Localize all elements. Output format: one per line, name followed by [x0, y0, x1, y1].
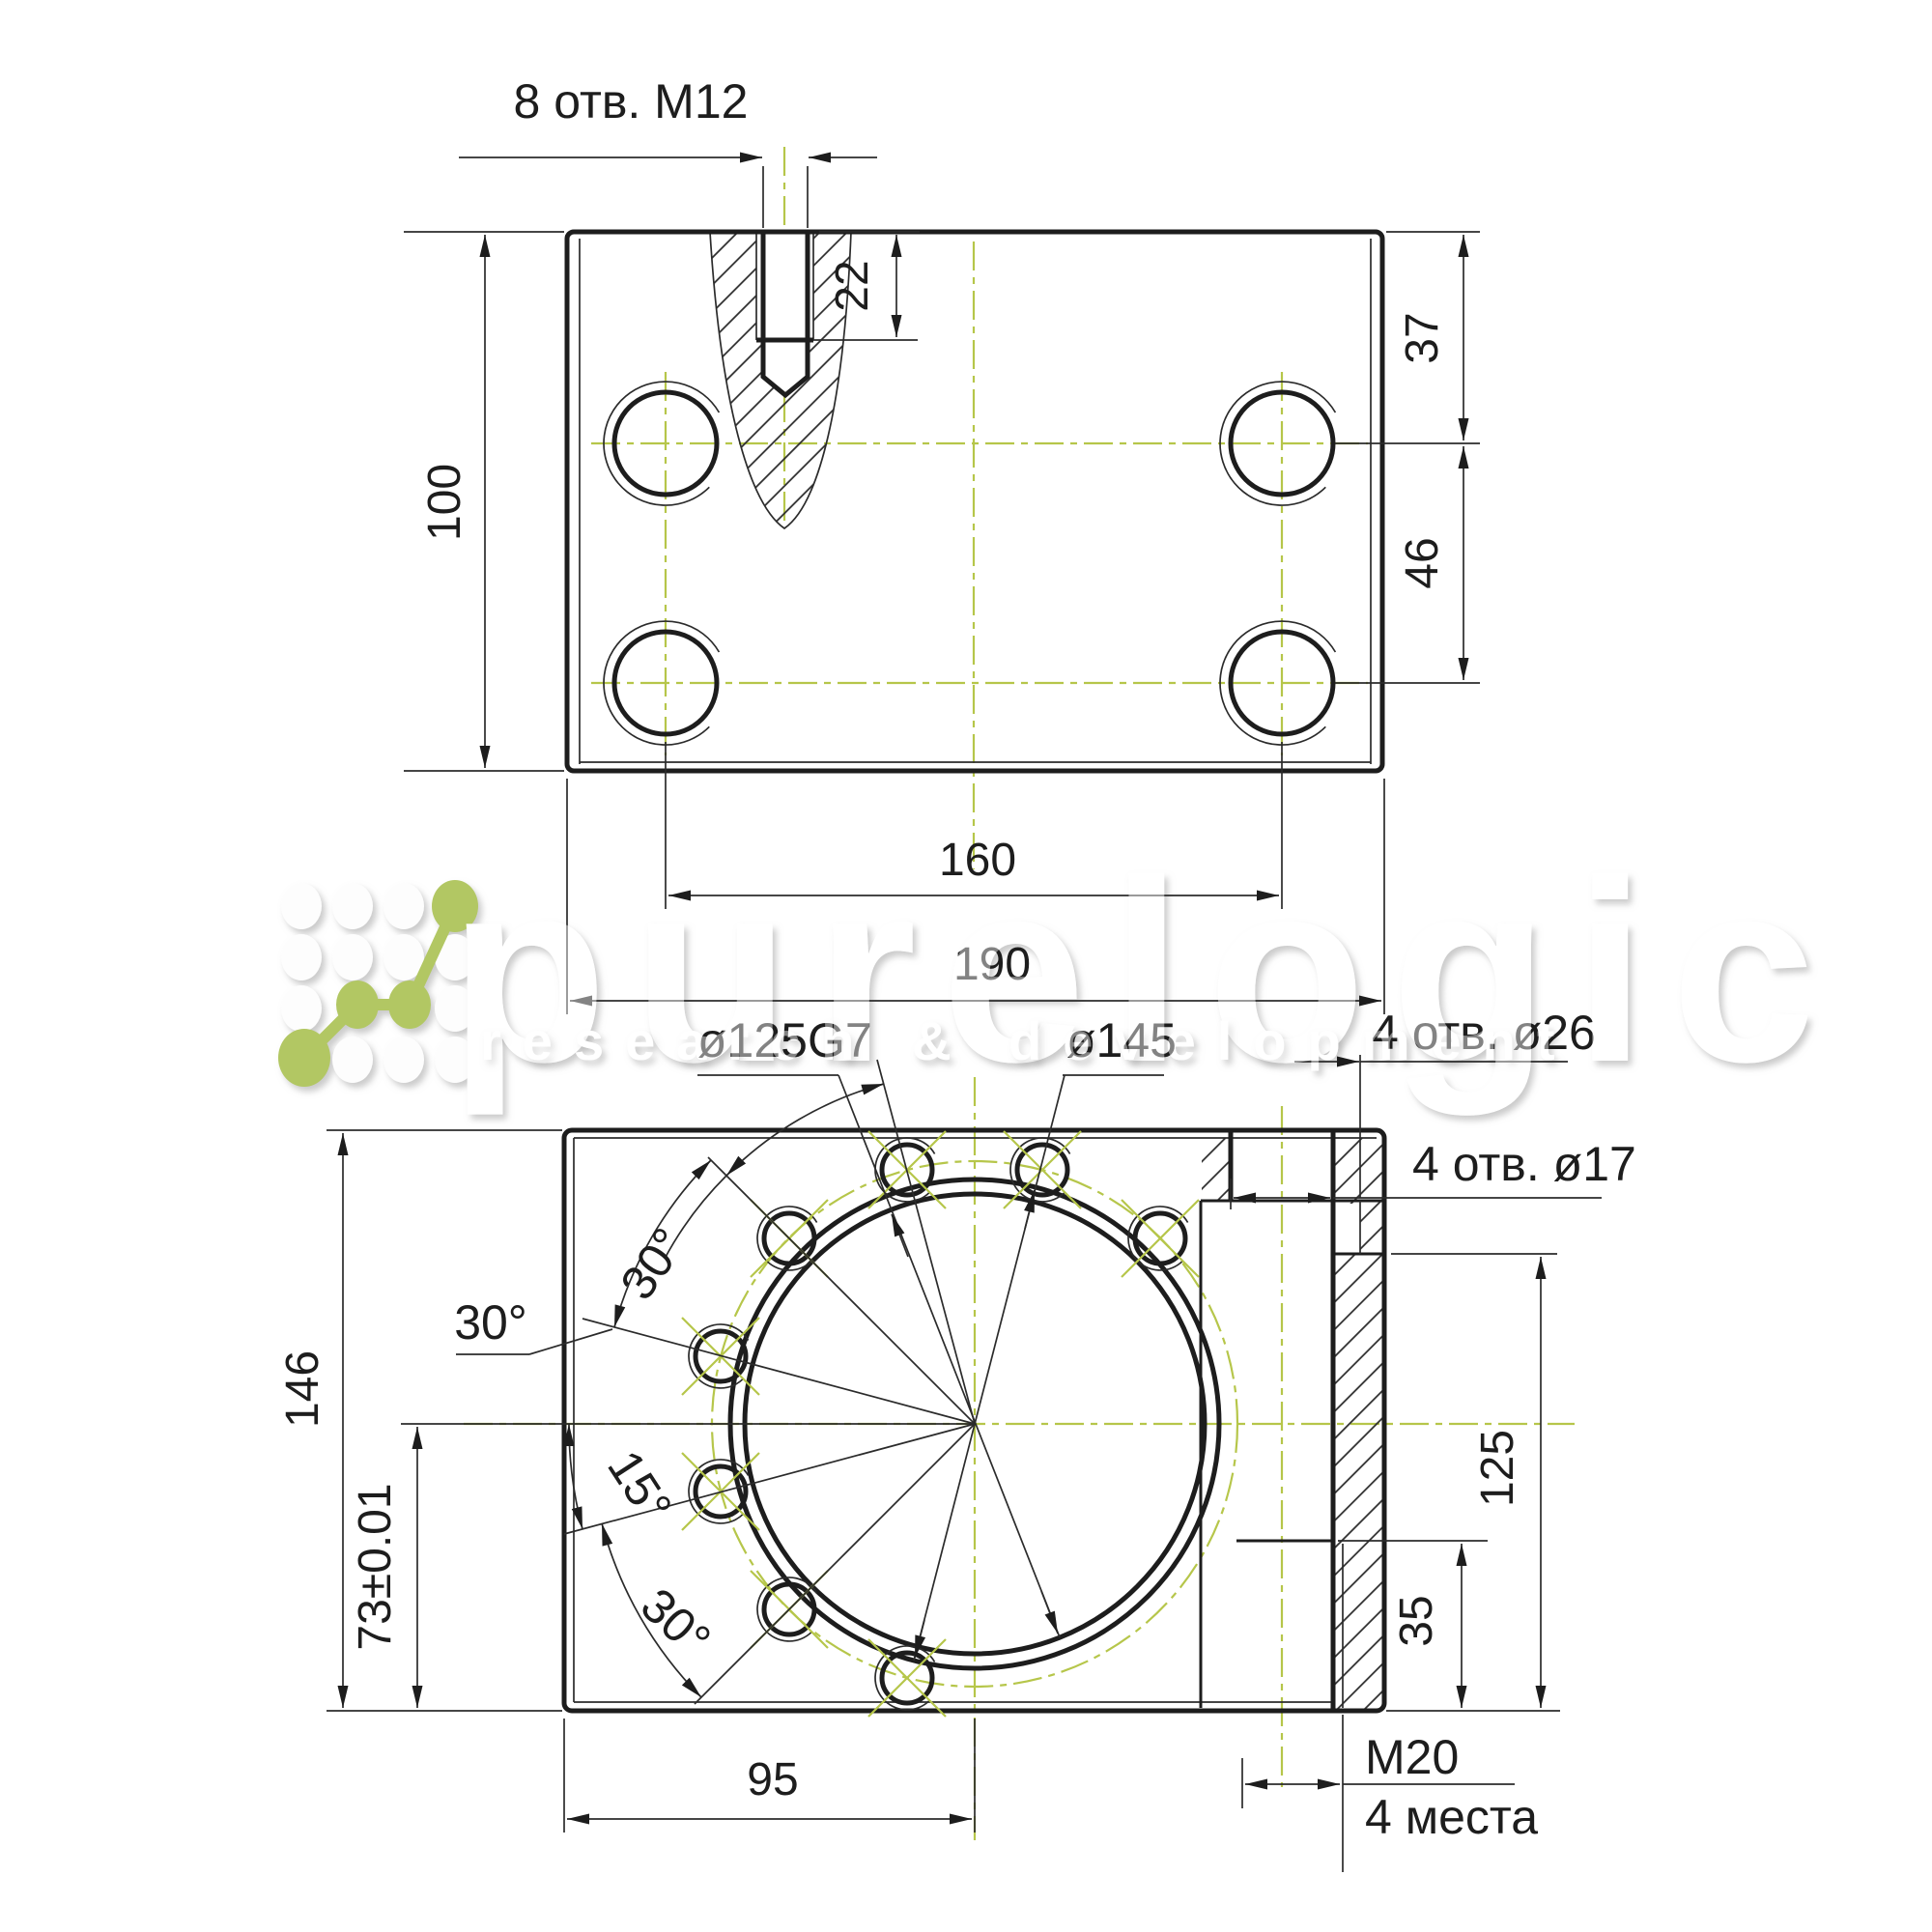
- technical-drawing: purelogic research & development: [0, 0, 1932, 1932]
- dim-95-label: 95: [747, 1754, 798, 1805]
- watermark-brand-overlay: purelogic: [449, 826, 1840, 1118]
- dim-125-label: 125: [1472, 1430, 1523, 1507]
- dim-m12-label: 8 отв. M12: [514, 74, 749, 128]
- watermark-overlay: purelogic research & development: [449, 826, 1840, 1118]
- dim-100-label: 100: [419, 464, 470, 541]
- dim-37-label: 37: [1397, 312, 1448, 363]
- drawing-page: purelogic research & development: [0, 0, 1932, 1932]
- dim-146-label: 146: [277, 1350, 328, 1428]
- dim-holes17-label: 4 отв. ø17: [1412, 1137, 1636, 1191]
- dim-m20-qty-label: 4 места: [1365, 1790, 1538, 1844]
- dim-m20-label: M20: [1365, 1730, 1459, 1784]
- watermark-tagline-overlay: research & development: [480, 1010, 1576, 1071]
- dim-30a-label: 30°: [454, 1295, 527, 1350]
- dim-35-label: 35: [1391, 1595, 1442, 1646]
- dim-46-label: 46: [1397, 537, 1448, 588]
- dim-73-label: 73±0.01: [350, 1483, 401, 1650]
- dim-22-label: 22: [827, 260, 878, 311]
